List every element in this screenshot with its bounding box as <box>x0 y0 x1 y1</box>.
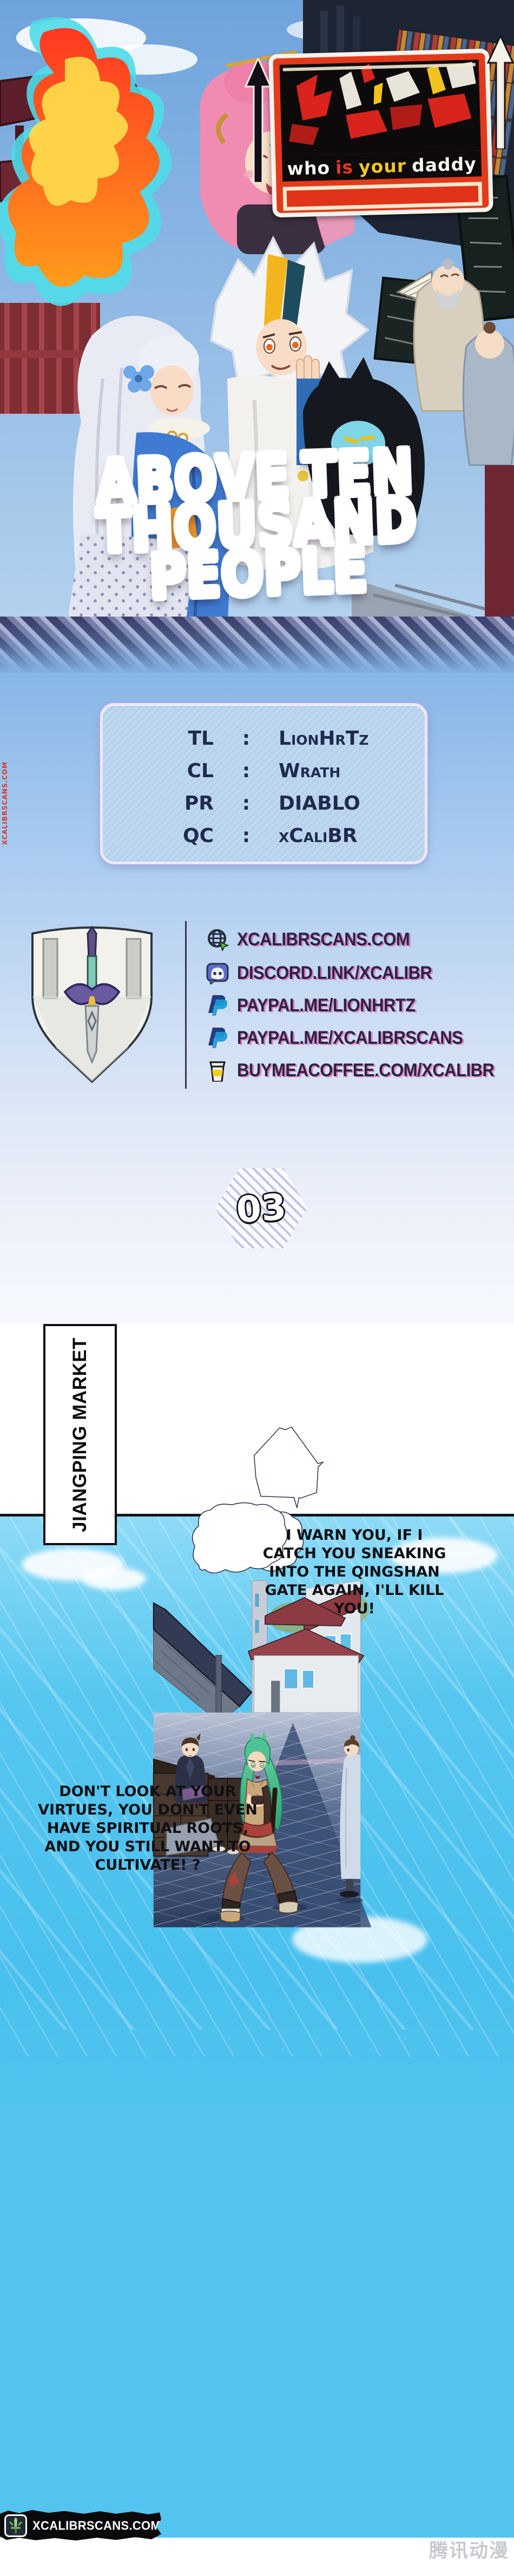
bubble-line: AND YOU STILL WANT TO <box>31 1838 264 1856</box>
scan-group-logo <box>4 2514 27 2537</box>
title-word: PEOPLE <box>149 541 369 607</box>
coffee-icon <box>206 1058 229 1082</box>
credit-separator: : <box>214 825 279 847</box>
bubble-line: YOU! <box>257 1600 452 1618</box>
black-up-arrow-icon <box>245 58 272 183</box>
scan-group-site: XCALIBRSCANS.COM <box>32 2518 161 2533</box>
cover-bottom-pattern <box>0 617 514 673</box>
graffiti-glyphs <box>280 59 481 156</box>
credit-row-pr: PR : DIABLO <box>103 787 425 819</box>
side-watermark: XCALIBRSCANS.COM <box>1 761 9 845</box>
logo-red-bar <box>287 186 479 207</box>
link-discord[interactable]: DISCORD.LINK/XCALIBR <box>206 958 432 988</box>
paypal-icon <box>206 1026 229 1050</box>
bubble-line: CATCH YOU SNEAKING <box>257 1545 452 1563</box>
discord-icon <box>206 961 229 985</box>
bubble-line: CULTIVATE! ? <box>31 1856 264 1875</box>
speech-bubbles <box>0 1422 514 1985</box>
link-text: PAYPAL.ME/LIONHRTZ <box>237 995 416 1016</box>
sword-icon <box>8 2517 24 2535</box>
credit-label: CL <box>103 760 214 782</box>
credit-value: LionHrTz <box>279 727 425 750</box>
white-up-arrow-icon <box>487 36 514 149</box>
links-divider <box>185 921 187 1089</box>
credits-card: TL : LionHrTz CL : Wrath PR : DIABLO QC … <box>100 703 427 864</box>
cover-art: who is your daddy ABOVETEN THOUSANDPEOPL… <box>0 0 514 629</box>
globe-icon <box>206 928 229 951</box>
link-website[interactable]: XCALIBRSCANS.COM <box>206 925 410 954</box>
bubble-line: I WARN YOU, IF I <box>257 1526 452 1545</box>
hand-on-cheek <box>296 356 319 382</box>
bubble-line: VIRTUES, YOU DON'T EVEN <box>31 1801 264 1819</box>
credit-label: TL <box>103 727 214 750</box>
link-paypal-xcalibrscans[interactable]: PAYPAL.ME/XCALIBRSCANS <box>206 1023 463 1052</box>
credit-row-qc: QC : xCaliBR <box>103 819 425 852</box>
credit-label: PR <box>103 792 214 814</box>
link-paypal-lionhrtz[interactable]: PAYPAL.ME/LIONHRTZ <box>206 991 416 1020</box>
link-text: XCALIBRSCANS.COM <box>237 929 410 950</box>
credit-value: xCaliBR <box>279 825 425 847</box>
series-title-line2: THOUSANDPEOPLE <box>0 493 514 607</box>
logo-word: who <box>287 157 331 179</box>
bubble-line: DON'T LOOK AT YOUR <box>31 1783 264 1801</box>
logo-graffiti-panel <box>280 59 481 156</box>
series-title: ABOVETEN THOUSANDPEOPLE <box>0 445 514 607</box>
credit-separator: : <box>214 727 279 750</box>
who-is-your-daddy-logo: who is your daddy <box>268 49 493 218</box>
link-text: BUYMEACOFFEE.COM/XCALIBR <box>237 1059 494 1081</box>
credit-separator: : <box>214 760 279 782</box>
chapter-number: 03 <box>235 1186 287 1230</box>
scan-group-banner[interactable]: XCALIBRSCANS.COM <box>0 2510 161 2541</box>
link-buymeacoffee[interactable]: BUYMEACOFFEE.COM/XCALIBR <box>206 1056 494 1085</box>
credit-row-tl: TL : LionHrTz <box>103 722 425 754</box>
credit-value: Wrath <box>279 760 425 782</box>
credit-value: DIABLO <box>279 792 425 814</box>
scanlation-page: who is your daddy ABOVETEN THOUSANDPEOPL… <box>0 0 514 2576</box>
logo-word: is <box>335 156 354 178</box>
publisher-watermark: 腾讯动漫 <box>429 2535 509 2563</box>
credit-separator: : <box>214 792 279 814</box>
xcalibr-sword-emblem <box>27 926 157 1084</box>
link-text: DISCORD.LINK/XCALIBR <box>237 962 432 984</box>
bubble-line: GATE AGAIN, I'LL KILL <box>257 1581 452 1600</box>
logo-subtitle-strip: who is your daddy <box>282 150 482 182</box>
bubble-line: INTO THE QINGSHAN <box>257 1563 452 1581</box>
speech-bubble-1-text: I WARN YOU, IF I CATCH YOU SNEAKING INTO… <box>257 1526 452 1618</box>
paypal-icon <box>206 994 229 1017</box>
logo-word: your <box>359 155 407 177</box>
bubble-line: HAVE SPIRITUAL ROOTS, <box>31 1819 264 1838</box>
credit-label: QC <box>103 825 214 847</box>
link-text: PAYPAL.ME/XCALIBRSCANS <box>237 1027 463 1049</box>
speech-bubble-2-text: DON'T LOOK AT YOUR VIRTUES, YOU DON'T EV… <box>31 1783 264 1875</box>
credit-row-cl: CL : Wrath <box>103 754 425 787</box>
logo-word: daddy <box>412 153 477 176</box>
